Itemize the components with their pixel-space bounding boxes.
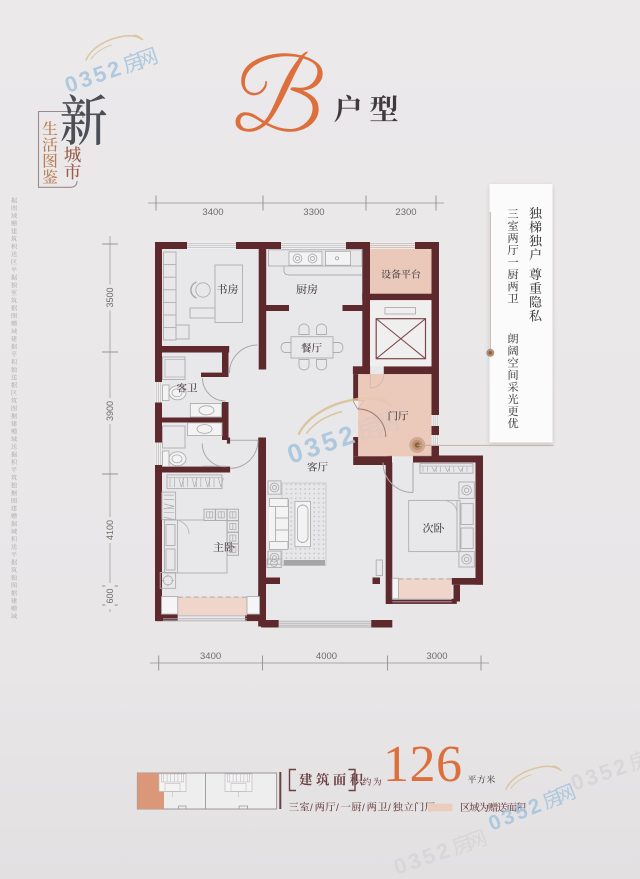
svg-text:/: /: [388, 803, 391, 814]
svg-text:/: /: [310, 803, 313, 814]
svg-text:/: /: [362, 803, 365, 814]
svg-text:600: 600: [105, 588, 115, 603]
svg-text:3500: 3500: [105, 287, 115, 307]
svg-text:3400: 3400: [200, 651, 221, 662]
svg-text:2300: 2300: [395, 207, 416, 218]
svg-text:3400: 3400: [202, 207, 223, 218]
svg-text:126: 126: [383, 736, 463, 793]
svg-text:4000: 4000: [316, 651, 337, 662]
svg-text:3300: 3300: [303, 207, 324, 218]
svg-text:4100: 4100: [105, 520, 115, 540]
svg-text:/: /: [336, 803, 339, 814]
svg-text:3000: 3000: [426, 651, 447, 662]
svg-text:3900: 3900: [105, 401, 115, 421]
